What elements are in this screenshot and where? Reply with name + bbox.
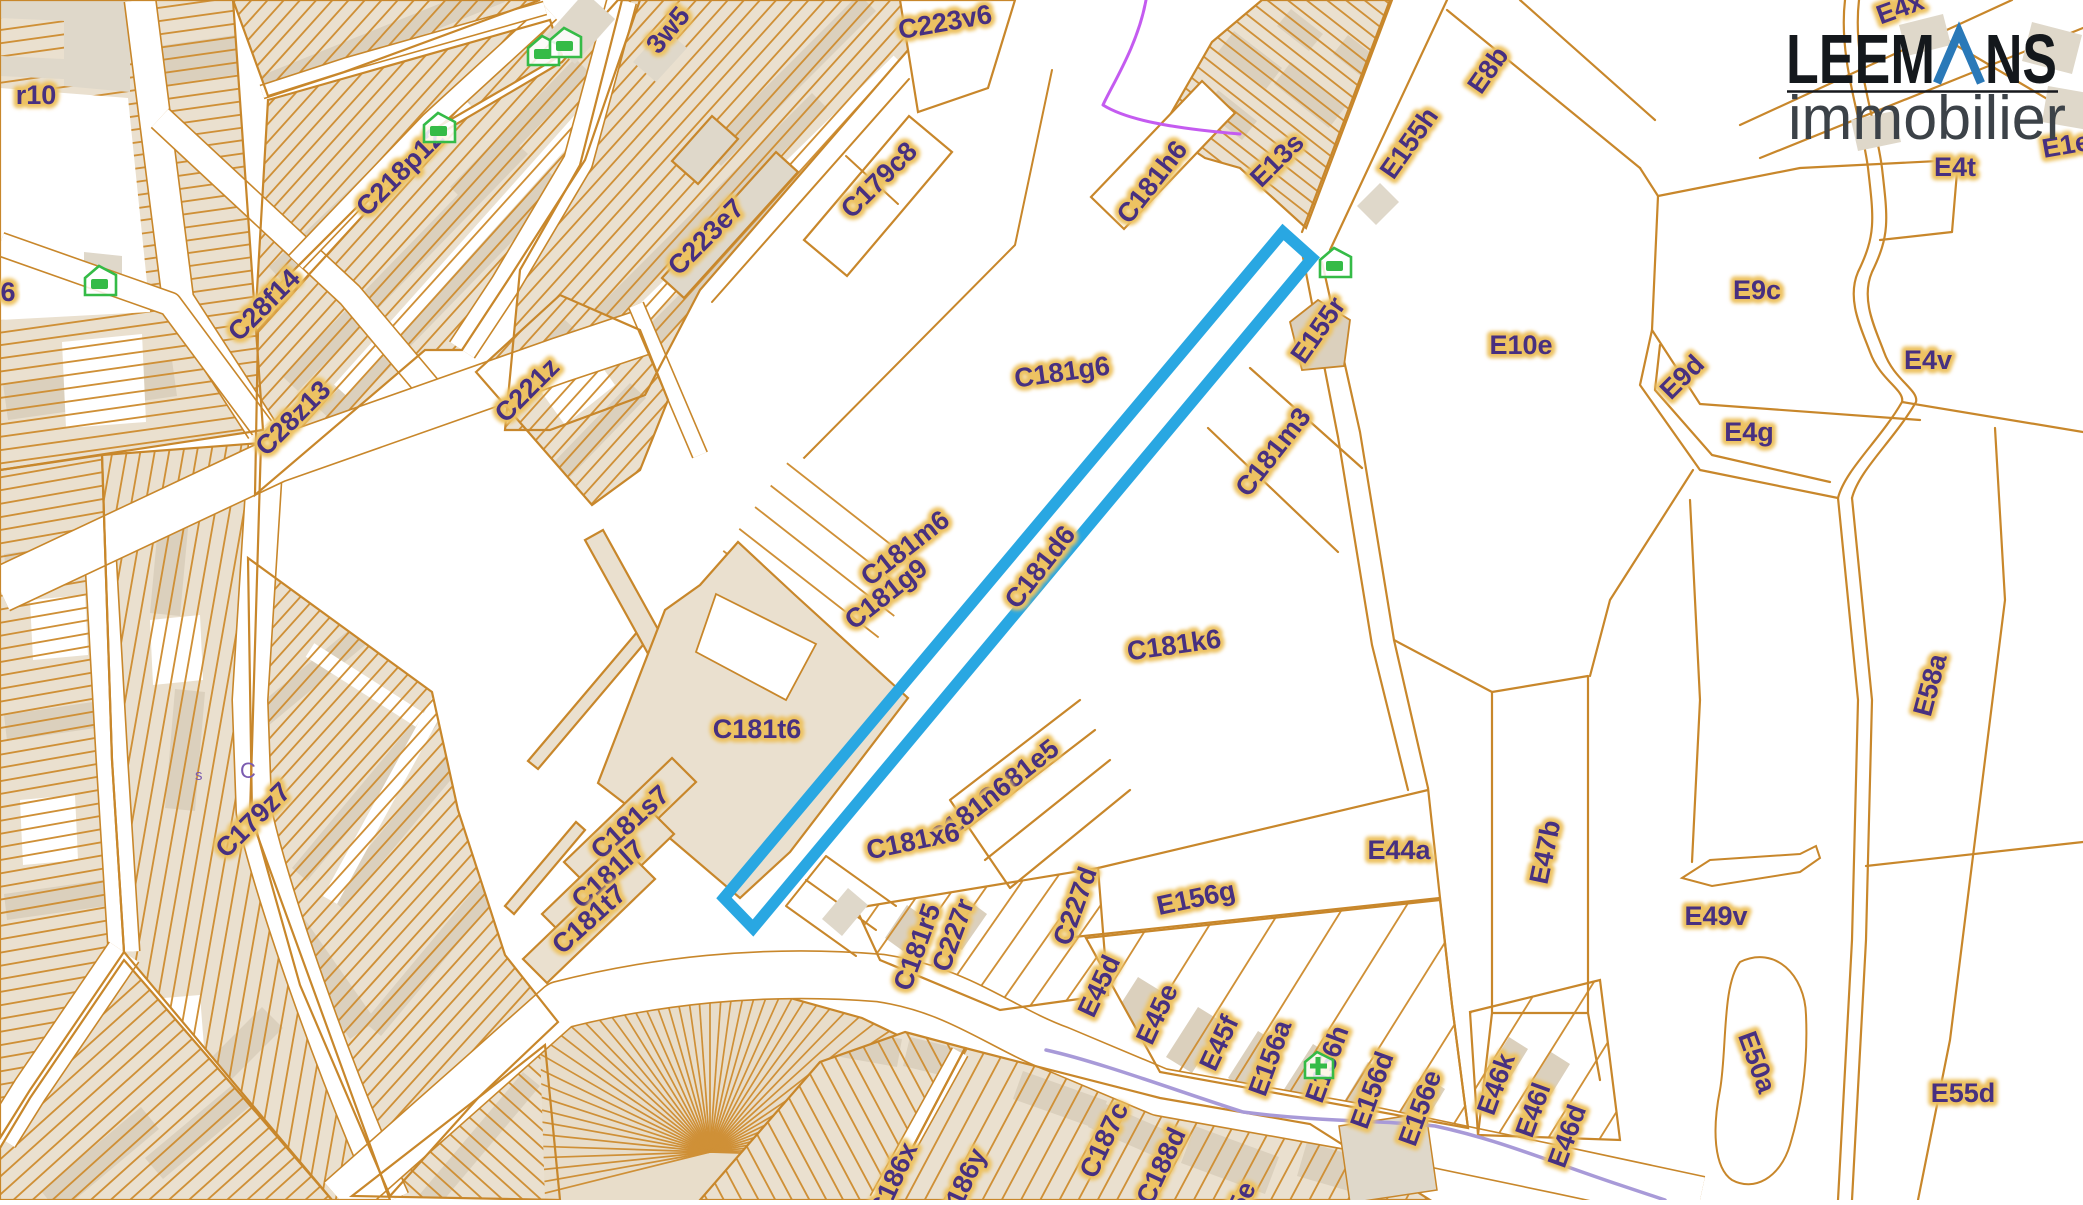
svg-text:E4g: E4g	[1724, 417, 1774, 447]
svg-text:6: 6	[0, 277, 15, 307]
svg-text:E9c: E9c	[1733, 275, 1781, 305]
svg-text:r10: r10	[16, 80, 57, 110]
svg-text:C181t6: C181t6	[713, 714, 802, 744]
svg-text:E4t: E4t	[1934, 152, 1976, 182]
svg-text:E4v: E4v	[1904, 345, 1952, 375]
svg-text:E10e: E10e	[1489, 330, 1552, 360]
svg-text:E49v: E49v	[1684, 901, 1747, 931]
svg-text:E44a: E44a	[1367, 835, 1431, 865]
svg-text:C: C	[240, 758, 256, 783]
svg-text:immobilier: immobilier	[1788, 84, 2066, 153]
svg-text:E55d: E55d	[1931, 1078, 1996, 1108]
svg-text:s: s	[195, 767, 203, 784]
